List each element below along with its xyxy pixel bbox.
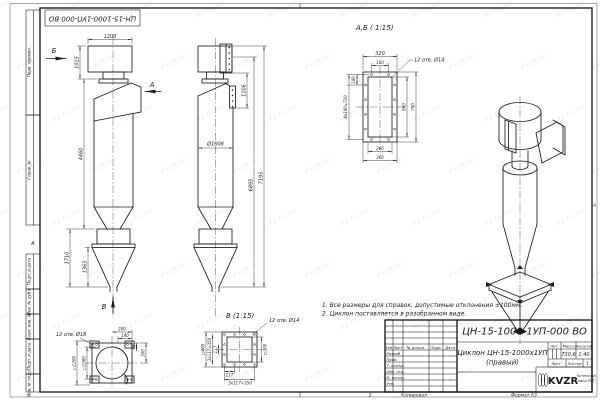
dim-top-outer: □1206 xyxy=(72,356,77,370)
tb-role-nachotd: Нач. отд. xyxy=(387,369,405,374)
dim-top-45: 45 xyxy=(131,344,136,350)
stamp-doc-number: ЦН-15-1000-1УП-000 ВО xyxy=(48,15,136,23)
tb-role-prov: Пров. xyxy=(387,357,398,362)
dim-side-height-inner: 6895 xyxy=(249,179,255,192)
tb-role-tkontr: Т. контр. xyxy=(387,363,405,368)
dim-ab-hole-spacing: 160 xyxy=(376,60,384,65)
note-line-1: 1. Все размеры для справок, допустимые о… xyxy=(322,302,522,309)
tb-header-list: Лист xyxy=(392,345,403,350)
tb-header-date: Дата xyxy=(444,345,456,350)
dim-ab-outer-width: 360 xyxy=(376,155,384,160)
dim-v-pitch-left: 3х117=350 xyxy=(207,337,212,361)
tb-role-utv: Утв. xyxy=(387,381,395,386)
section-ab-holes-note: 12 отв. Ø14 xyxy=(414,57,444,64)
tb-company-line2: завод РЭП xyxy=(577,379,595,383)
tb-company-line1: Котельный xyxy=(577,374,596,378)
dim-v-inner: □300 xyxy=(263,343,268,355)
frame-label-inv-podl: Инв. № подл. xyxy=(27,369,32,397)
frame-label-vzam-inv: Взам. инв. № xyxy=(27,313,32,340)
tb-scale-value: 1:40 xyxy=(578,352,589,358)
drawing-sheet: KVZR.RUKVZR.RUKVZR.RUKVZR.RUKVZR.RUKVZR.… xyxy=(0,0,600,400)
dim-v-pitch-one-left: 117 xyxy=(213,345,218,353)
dim-v-pitch-one-bottom: 117 xyxy=(226,373,234,378)
view-arrow-b-label: Б xyxy=(52,47,57,55)
dim-top-200: 200 xyxy=(118,327,126,332)
view-arrow-a-label: А xyxy=(149,81,155,89)
dim-front-box-height: 1015 xyxy=(75,56,81,69)
drawing-canvas: Перв. примен. Справ. № Подп. и дата Инв.… xyxy=(0,0,600,400)
dim-front-width: 1200 xyxy=(104,34,117,40)
tb-role-razrab: Разраб. xyxy=(387,351,402,356)
company-logo-text: KVZR xyxy=(548,376,579,387)
dim-v-outer: □460 xyxy=(201,343,206,355)
dim-ab-first-pitch: 180 xyxy=(351,76,356,84)
tb-mass-label: Масса xyxy=(562,343,575,348)
tb-lit-label: Лит. xyxy=(549,343,559,348)
tb-header-izm: Изм. xyxy=(385,345,394,350)
dim-top-140: 140 xyxy=(121,333,129,338)
view-arrow-v-label: В xyxy=(102,303,107,311)
tb-sheets-value: 1 xyxy=(586,361,589,367)
dim-front-body-height: 4460 xyxy=(79,148,85,161)
company-logo: KVZR Котельный завод РЭП xyxy=(538,374,595,388)
dim-side-diameter: Ø1008 xyxy=(206,141,224,148)
tb-product-variant: (правый) xyxy=(486,359,519,367)
note-line-2: 2. Циклон поставляется в разобранном вид… xyxy=(322,311,466,318)
tb-sheets-label: Листов xyxy=(566,361,582,366)
frame-label-podp-data-1: Подп. и дата xyxy=(27,257,32,285)
dim-ab-inner-width: 260 xyxy=(376,146,384,151)
tb-scale-label: Масштаб xyxy=(575,343,594,348)
zone-letter-left: А xyxy=(30,241,35,247)
view-v-detail: В (1:15) 12 отв. Ø14 □460 3х117=350 xyxy=(201,312,300,386)
top-stamp: ЦН-15-1000-1УП-000 ВО xyxy=(45,10,140,26)
dim-top-300: 300 xyxy=(141,349,146,357)
sheet-frame: Перв. примен. Справ. № Подп. и дата Инв.… xyxy=(10,4,597,399)
frame-label-podp-data-2: Подп. и дата xyxy=(27,342,32,370)
zone-number-bottom: 1 xyxy=(369,392,372,398)
tb-sheet-label: Лист xyxy=(550,361,561,366)
top-view-detail: 12 отв. Ø18 200 14 xyxy=(56,327,148,391)
tb-role-nkontr: Н. контр. xyxy=(387,375,405,380)
dim-ab-outer-height: 760 xyxy=(410,103,415,111)
view-v-holes-note: 12 отв. Ø14 xyxy=(269,317,299,324)
front-view: 1200 Б 1015 А 4460 xyxy=(46,34,161,318)
title-block: Изм. Лист № докум. Подп. Дата Разраб. Пр… xyxy=(385,320,596,392)
side-view: Ø1008 1106 6895 7195 xyxy=(194,38,267,318)
dim-v-pitch-bottom: 3х117=350 xyxy=(228,381,252,386)
format-label: Формат А3 xyxy=(511,392,537,398)
tb-doc-number: ЦН-15-1000-1УП-000 ВО xyxy=(462,327,587,338)
section-ab-view: А,Б ( 1:15) 12 отв. Ø14 320 16 xyxy=(343,24,444,163)
tb-header-doc: № докум. xyxy=(406,345,426,350)
frame-label-sprav-no: Справ. № xyxy=(27,160,32,179)
view-v-title: В (1:15) xyxy=(226,312,254,320)
copied-label: Копировал xyxy=(401,392,427,398)
dim-side-outlet: 1106 xyxy=(242,84,248,97)
tb-header-sign: Подп. xyxy=(430,345,442,350)
top-view-holes-note: 12 отв. Ø18 xyxy=(56,331,86,338)
dim-front-bunker-height: 1710 xyxy=(65,252,71,265)
left-frame-columns: Перв. примен. Справ. № Подп. и дата Инв.… xyxy=(26,10,40,397)
frame-label-inv-dubl: Инв. № дубл. xyxy=(27,288,32,315)
notes: 1. Все размеры для справок, допустимые о… xyxy=(322,302,522,318)
dim-front-cone-height: 1365 xyxy=(83,261,89,274)
section-ab-title: А,Б ( 1:15) xyxy=(355,24,394,32)
tb-product-name: Циклон ЦН-15-1000х1УП xyxy=(457,349,548,357)
zone-letter-right: А xyxy=(592,203,596,208)
frame-label-perv-primen: Перв. примен. xyxy=(27,47,32,77)
dim-ab-pitch-total: 4х180=720 xyxy=(343,95,348,119)
dim-ab-width-top: 320 xyxy=(375,51,385,57)
dim-top-inner: □1060 xyxy=(82,356,87,370)
dim-side-height-total: 7195 xyxy=(259,172,265,185)
tb-mass-value: 730,6 xyxy=(561,352,575,358)
dim-ab-inner-height: 660 xyxy=(401,103,406,111)
